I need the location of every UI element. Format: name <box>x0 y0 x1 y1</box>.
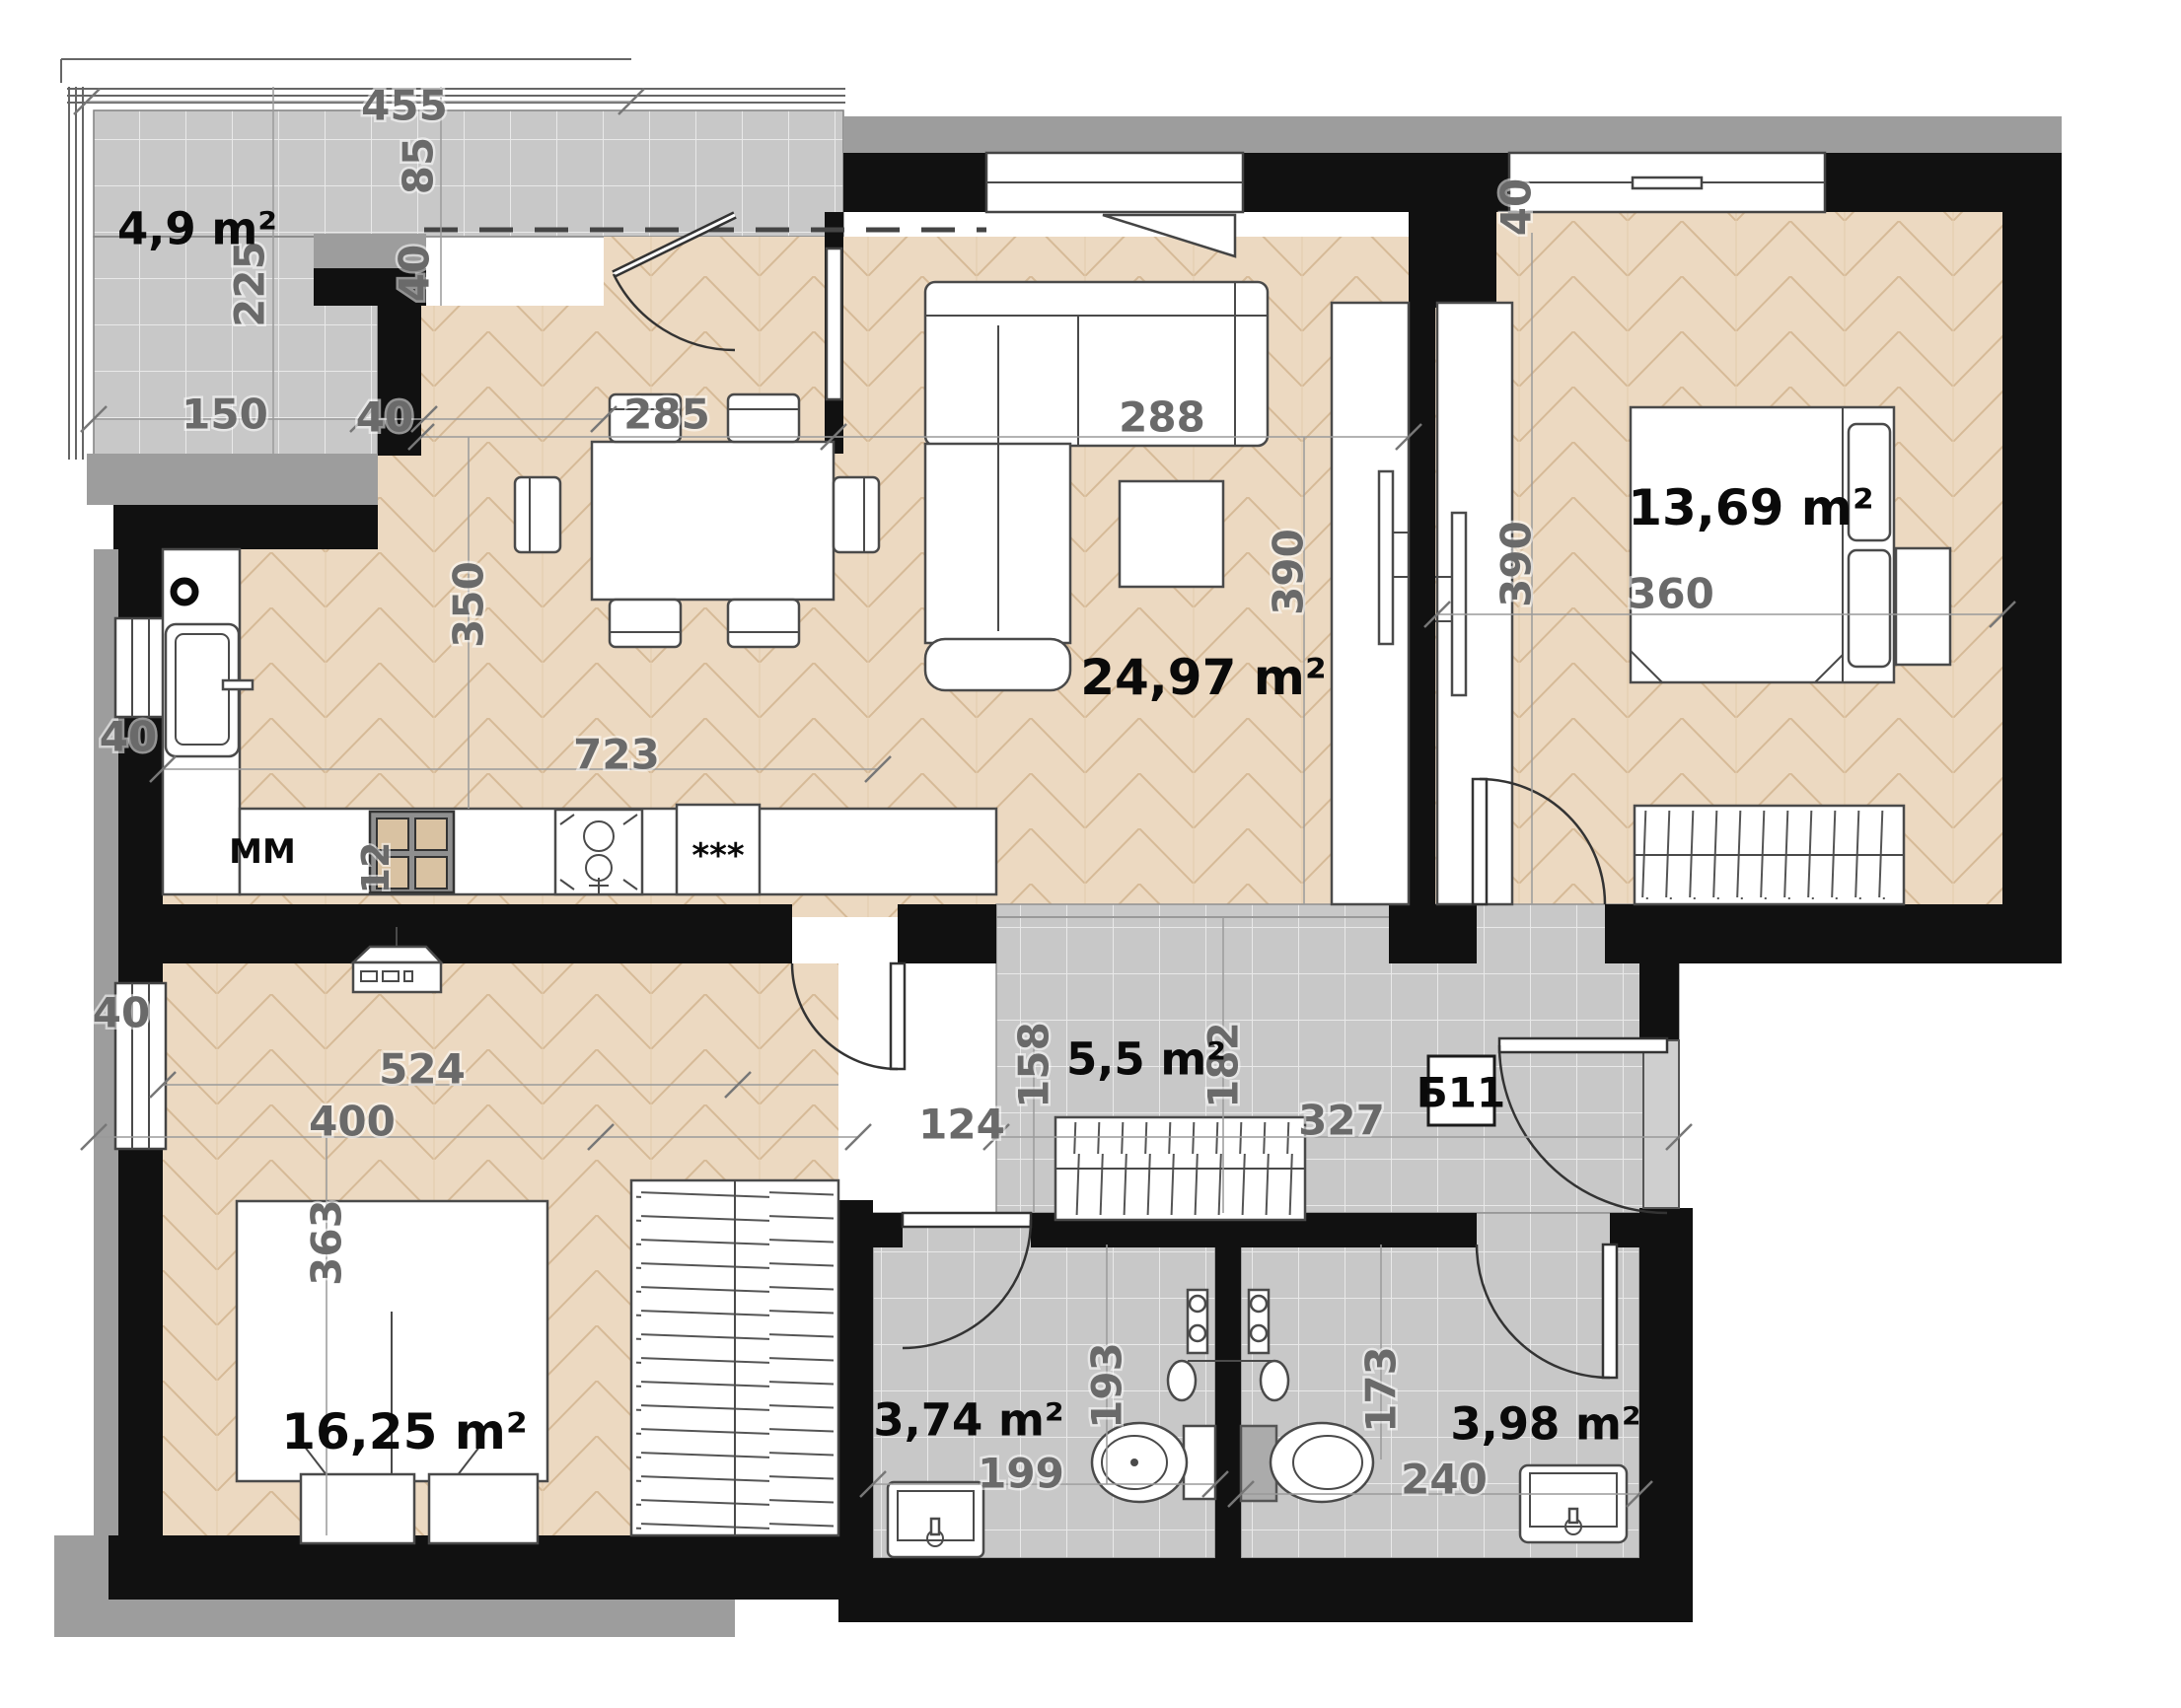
dim-40-bedroom1-top: 40 <box>1492 178 1541 236</box>
unit-number-label: Б11 <box>1417 1069 1505 1117</box>
dim-390-living: 390 <box>1265 529 1313 615</box>
dim-363: 363 <box>303 1199 351 1286</box>
dim-285: 285 <box>623 391 710 439</box>
bathroom1-toilet <box>1092 1423 1215 1502</box>
bathroom1-sink <box>888 1482 983 1557</box>
dim-150: 150 <box>182 391 268 439</box>
dim-193: 193 <box>1083 1342 1131 1429</box>
bed-1 <box>1631 407 1894 682</box>
wardrobe-bedroom1 <box>1635 806 1904 904</box>
microwave-label: MM <box>229 832 296 872</box>
dim-360: 360 <box>1628 570 1714 618</box>
bathroom2-area-label: 3,98 m² <box>1450 1398 1640 1451</box>
dim-240: 240 <box>1401 1456 1488 1504</box>
bed-2-nightstand-left <box>301 1474 414 1543</box>
dim-85: 85 <box>395 137 443 194</box>
bathroom2-toilet <box>1241 1423 1373 1502</box>
bedroom1-window <box>1509 153 1825 212</box>
dim-199: 199 <box>978 1450 1064 1498</box>
coffee-table <box>1120 481 1223 587</box>
terrace-sidelight-window <box>827 249 841 399</box>
kitchen-window <box>115 618 166 717</box>
bathroom1-area-label: 3,74 m² <box>873 1394 1063 1447</box>
dim-40-bedroom2-window: 40 <box>93 989 150 1037</box>
dim-390-bedroom1: 390 <box>1492 521 1541 607</box>
hallway-wardrobe <box>1055 1117 1305 1220</box>
tv-bedroom1-icon <box>1452 513 1466 695</box>
dim-124: 124 <box>918 1101 1005 1149</box>
dim-524: 524 <box>379 1045 466 1094</box>
terrace-area-label: 4,9 m² <box>117 203 277 255</box>
tv-living-icon <box>1379 471 1393 644</box>
freezer-stars-label: *** <box>691 836 745 876</box>
dim-12: 12 <box>354 842 398 894</box>
oven <box>555 810 642 894</box>
dim-288: 288 <box>1119 393 1205 442</box>
dim-40-terrace-bottom: 40 <box>356 393 413 442</box>
dim-455: 455 <box>361 82 448 130</box>
bathroom2-sink <box>1520 1465 1627 1542</box>
kitchen-sink <box>166 624 253 756</box>
dim-350: 350 <box>445 561 493 648</box>
dim-723: 723 <box>573 731 660 779</box>
bedroom1-area-label: 13,69 m² <box>1628 479 1874 536</box>
bedroom2-area-label: 16,25 m² <box>281 1403 528 1460</box>
unit-number-badge: Б11 <box>1417 1056 1505 1125</box>
living-area-label: 24,97 m² <box>1080 649 1327 706</box>
dim-158: 158 <box>1010 1022 1058 1108</box>
dim-400: 400 <box>309 1098 396 1146</box>
hallway-area-label: 5,5 m² <box>1066 1033 1226 1086</box>
floor-plan-drawing: Б11 <box>0 0 2181 1708</box>
bed-2-nightstand-right <box>429 1474 538 1543</box>
wardrobe-bedroom2 <box>631 1180 838 1535</box>
dim-40-terrace-door: 40 <box>391 245 439 302</box>
dim-327: 327 <box>1298 1097 1385 1145</box>
dim-40-kitchen-window: 40 <box>100 713 157 761</box>
bed-1-nightstand <box>1896 548 1950 665</box>
dim-173: 173 <box>1357 1346 1406 1433</box>
floor-plan-page: Б11 <box>0 0 2181 1708</box>
